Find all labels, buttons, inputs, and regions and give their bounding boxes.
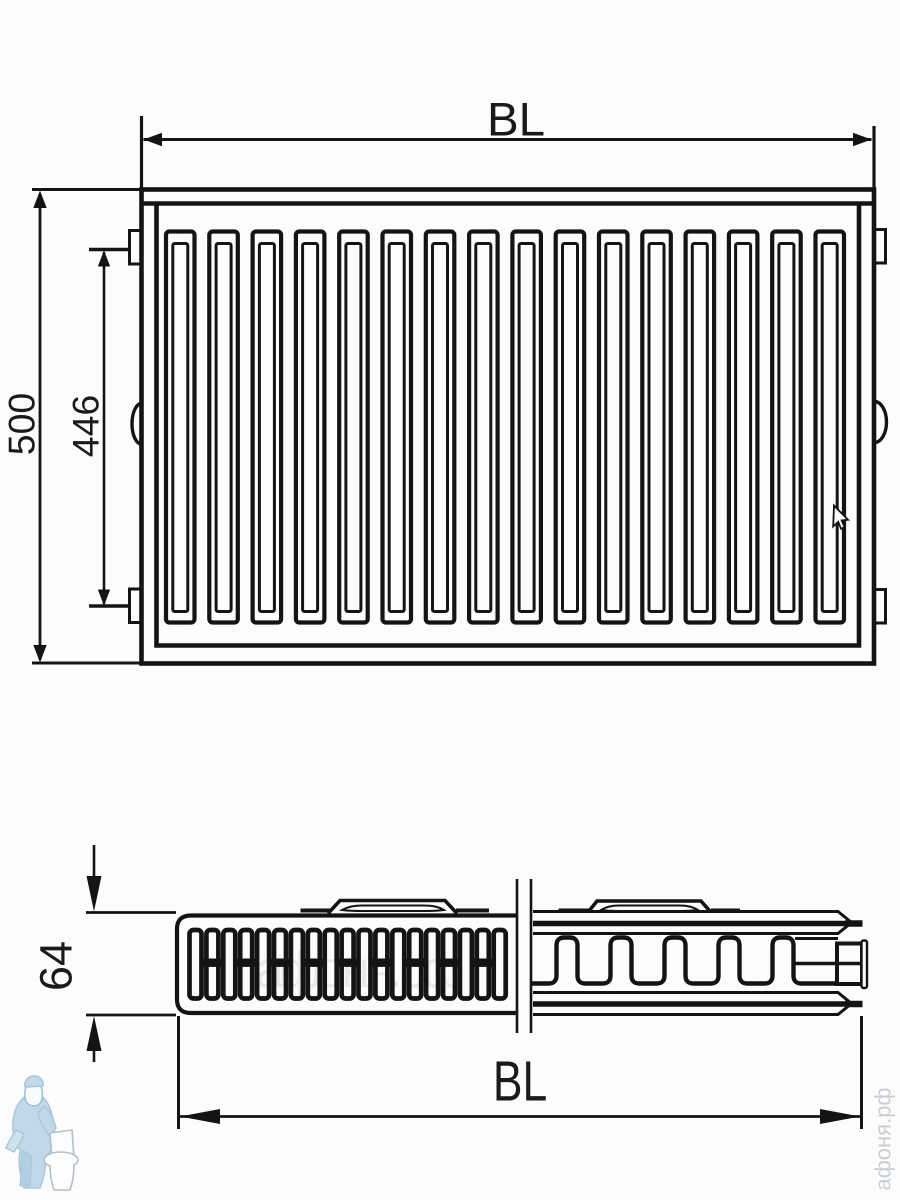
svg-text:500: 500 <box>1 393 43 456</box>
svg-text:BL: BL <box>493 1049 547 1113</box>
svg-text:афоня.рф: афоня.рф <box>871 1087 896 1190</box>
svg-text:64: 64 <box>31 941 82 991</box>
svg-text:446: 446 <box>65 395 107 458</box>
svg-text:BL: BL <box>487 94 545 147</box>
